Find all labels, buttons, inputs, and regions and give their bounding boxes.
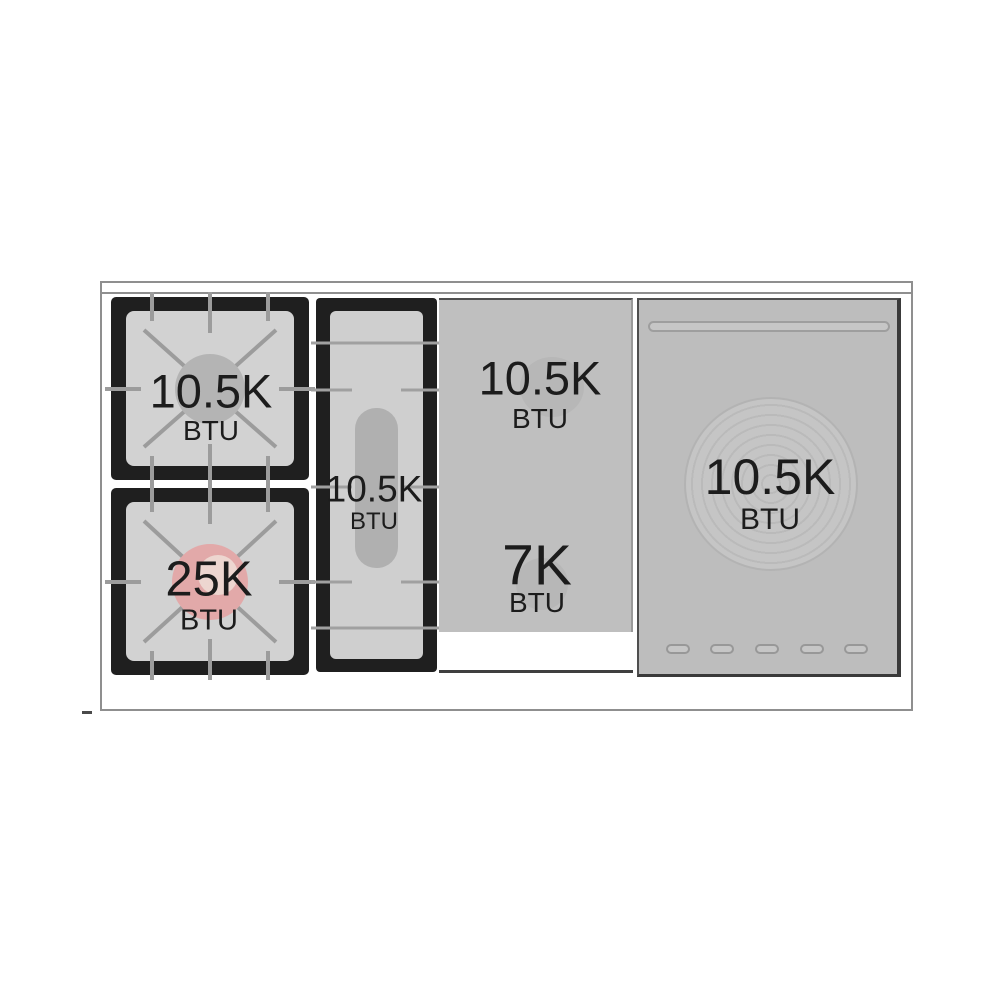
left-front-burner-btu-value: 25K <box>165 556 252 605</box>
indicator-pill-3 <box>755 644 779 654</box>
left-front-burner-btu-unit: BTU <box>180 607 238 636</box>
indicator-pill-2 <box>710 644 734 654</box>
dimension-tick <box>82 711 92 714</box>
far-right-burner-btu-value: 10.5K <box>705 452 836 502</box>
left-rear-burner-btu-unit: BTU <box>183 417 239 445</box>
cooktop-back-trim-line <box>102 292 911 294</box>
right-front-burner-btu-value: 7K <box>502 538 572 595</box>
left-rear-burner-btu-value: 10.5K <box>150 368 273 415</box>
cooktop-diagram: 10.5K BTU 25K BTU 10.5K BTU 10.5K BTU 7K… <box>0 0 1000 1000</box>
right-rear-burner-btu-unit: BTU <box>512 405 568 433</box>
right-gas-panel-front-trim <box>439 632 633 673</box>
center-griddle-btu-unit: BTU <box>350 510 398 534</box>
indicator-pill-4 <box>800 644 824 654</box>
center-griddle-btu-value: 10.5K <box>326 471 423 508</box>
far-right-panel-handle-bar <box>648 321 890 332</box>
indicator-pill-1 <box>666 644 690 654</box>
indicator-pill-5 <box>844 644 868 654</box>
far-right-burner-btu-unit: BTU <box>740 505 800 535</box>
right-front-burner-btu-unit: BTU <box>509 589 565 617</box>
right-rear-burner-btu-value: 10.5K <box>479 355 602 402</box>
